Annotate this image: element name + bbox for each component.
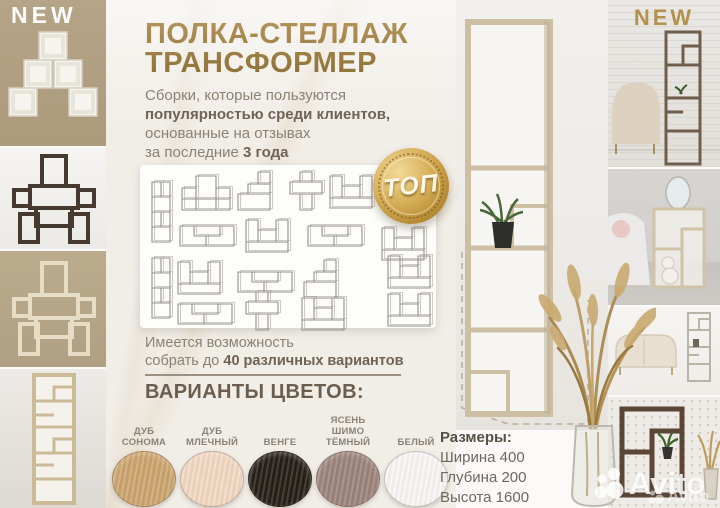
configuration-diagram — [176, 297, 236, 327]
bedroom-icon — [608, 169, 720, 305]
avito-logo-icon — [648, 487, 666, 506]
dimension-width: Ширина 400 — [440, 448, 529, 468]
swatch-label: ЯСЕНЬ ШИМО ТЁМНЫЙ — [316, 406, 380, 448]
dark-tower-shelf-icon — [666, 32, 700, 164]
swatch-color — [180, 451, 244, 507]
book-icon — [693, 339, 699, 347]
configuration-diagram — [306, 219, 366, 249]
sofa-scene-icon — [608, 307, 720, 395]
mirror-icon — [666, 177, 690, 209]
photo-tower-shelf — [0, 369, 106, 508]
photo-sofa — [608, 307, 720, 395]
colors-heading: ВАРИАНТЫ ЦВЕТОВ: — [145, 381, 364, 404]
photo-main-shelf — [456, 0, 608, 430]
swatch-bely: БЕЛЫЙ — [384, 406, 448, 507]
poster: NEW — [0, 0, 720, 508]
swatch-color — [248, 451, 312, 507]
wenge-shelf-icon — [0, 148, 106, 249]
vase-icon — [662, 257, 674, 269]
configuration-diagram — [176, 259, 224, 297]
photo-white-cubes: NEW — [0, 0, 106, 146]
configuration-diagram — [386, 253, 434, 291]
sofa-icon — [616, 335, 676, 367]
avito-watermark-text: Avito — [667, 486, 709, 506]
swatch-label: ДУБ МЛЕЧНЫЙ — [180, 406, 244, 448]
swatch-venge: ВЕНГЕ — [248, 406, 312, 507]
dimension-height: Высота 1600 — [440, 488, 529, 508]
swatch-label: ВЕНГЕ — [264, 406, 297, 448]
variants-note: Имеется возможностьсобрать до 40 различн… — [145, 334, 404, 370]
divider-line — [145, 374, 401, 376]
new-badge-right: NEW — [608, 5, 720, 31]
dimension-depth: Глубина 200 — [440, 468, 529, 488]
page-title: ПОЛКА-СТЕЛЛАЖТРАНСФОРМЕР — [145, 20, 408, 78]
configuration-diagram — [150, 255, 174, 321]
swatch-yasen-shimo: ЯСЕНЬ ШИМО ТЁМНЫЙ — [316, 406, 380, 507]
top-medal-label: ТОП — [382, 169, 440, 204]
swatch-color — [384, 451, 448, 507]
intro-line1: Сборки, которые пользуются — [145, 87, 346, 104]
note-line1: Имеется возможность — [145, 335, 294, 351]
photo-oak-shelf — [0, 251, 106, 367]
configuration-diagram — [288, 169, 326, 213]
plant-icon — [675, 85, 687, 94]
swatch-color — [316, 451, 380, 507]
new-badge-left: NEW — [11, 2, 77, 29]
photo-bedroom — [608, 169, 720, 305]
configuration-diagram — [386, 291, 434, 329]
configuration-diagram — [236, 169, 274, 213]
swatch-dub-sonoma: ДУБ СОНОМА — [112, 406, 176, 507]
configuration-diagram — [328, 173, 376, 211]
avito-logo-icon — [594, 467, 626, 501]
intro-line2: популярностью среди клиентов, — [145, 106, 390, 123]
intro-line4: за последние — [145, 144, 243, 161]
configuration-diagram — [180, 173, 234, 213]
main-shelf-icon — [456, 0, 608, 430]
swatch-label: ДУБ СОНОМА — [112, 406, 176, 448]
note-line2-bold: 40 различных вариантов — [223, 353, 403, 369]
configuration-diagram — [178, 219, 238, 249]
configuration-diagram — [244, 217, 292, 255]
color-swatches: ДУБ СОНОМА ДУБ МЛЕЧНЫЙ ВЕНГЕ ЯСЕНЬ ШИМО … — [112, 406, 454, 507]
intro-line3: основанные на отзывах — [145, 125, 310, 142]
dimensions-heading: Размеры: — [440, 428, 529, 448]
configuration-diagram — [300, 295, 348, 333]
swatch-label: БЕЛЫЙ — [398, 406, 435, 448]
title-line1: ПОЛКА-СТЕЛЛАЖ — [145, 18, 408, 50]
tower-shelf-icon — [0, 369, 106, 508]
photo-wenge-shelf — [0, 148, 106, 249]
note-line2: собрать до — [145, 353, 223, 369]
plant-icon — [658, 432, 678, 459]
dimensions-block: Размеры: Ширина 400 Глубина 200 Высота 1… — [440, 428, 529, 508]
armchair-icon — [612, 82, 660, 144]
title-line2: ТРАНСФОРМЕР — [145, 47, 377, 79]
configuration-diagram — [244, 289, 282, 333]
photo-brick-room: NEW — [608, 0, 720, 167]
avito-watermark-small: Avito — [648, 486, 709, 506]
oak-shelf-icon — [0, 251, 106, 367]
swatch-color — [112, 451, 176, 507]
intro-line4-bold: 3 года — [243, 144, 288, 161]
configuration-diagram — [150, 179, 174, 245]
intro-text: Сборки, которые пользуютсяпопулярностью … — [145, 86, 390, 162]
swatch-dub-mlechny: ДУБ МЛЕЧНЫЙ — [180, 406, 244, 507]
main-panel: ПОЛКА-СТЕЛЛАЖТРАНСФОРМЕР Сборки, которые… — [106, 0, 456, 508]
